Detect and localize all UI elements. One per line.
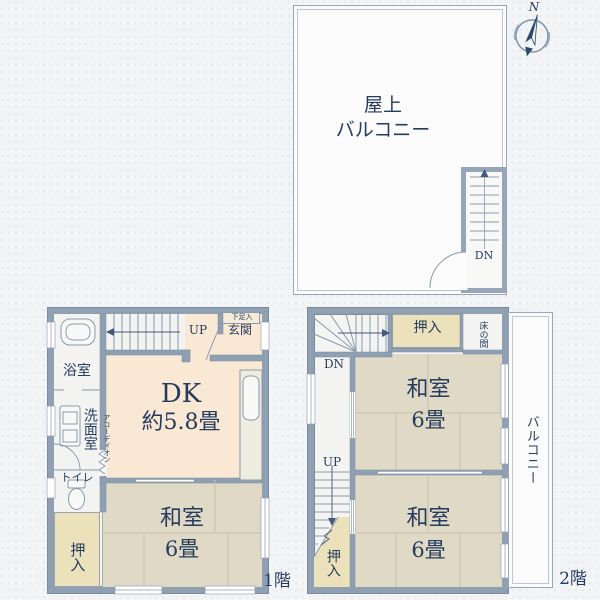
stair-arrow-left-icon [106,328,114,336]
stairs-up-label-2f: UP [314,456,350,469]
floor1-plan: 下足入 [48,308,268,593]
washing-machine-icon [60,406,80,446]
closet-label-1f: 押入 [54,528,100,586]
washitsu-lower-name-label: 和室 [355,507,502,532]
washroom-label: 洗面室 [80,394,98,464]
closet-bottom-label-2f: 押入 [314,540,350,586]
balcony-2f: バルコニー [508,312,553,588]
stair-arrow-up-icon [481,169,489,177]
washitsu-lower-size-label: 6畳 [355,539,502,563]
compass-north-label: N [524,1,544,14]
balcony-label: バルコニー [509,313,552,587]
bath-door-gap [64,389,82,392]
washitsu-size-label-1f: 6畳 [102,538,262,562]
genkan-label: 玄関 [218,324,262,337]
rooftop-dn-label: DN [461,250,507,262]
washitsu-upper-name-label: 和室 [355,378,502,403]
washitsu-name-label-1f: 和室 [102,507,262,532]
stairs-up-label-1f: UP [181,324,215,337]
tokonoma-label: 床の間 [463,314,502,354]
floor2-tag: 2階 [552,570,594,589]
room-divider-sliding-doors [378,471,482,474]
dk-size-label: 約5.8畳 [106,411,256,436]
stairs-dn-label-2f: DN [314,358,354,371]
rooftop-plan: 屋上 バルコニー DN [293,5,507,295]
floor2-plan: DN UP 押入 床の間 和室 6畳 和室 6畳 押入 [308,308,508,593]
toilet-label: トイレ [54,472,100,484]
closet-top-label-2f: 押入 [392,321,463,337]
floor1-tag: 1階 [258,572,296,591]
bathtub-icon [61,319,95,345]
bath-label: 浴室 [54,364,100,380]
washitsu-upper-size-label: 6畳 [355,409,502,433]
front-door-opening [261,322,269,350]
toilet-icon [68,480,85,510]
washroom-door-arc [54,444,80,470]
tatami-grid-1f [102,480,262,587]
floorplan-page: 屋上 バルコニー DN N [0,0,600,600]
dk-name-label: DK [106,380,256,409]
